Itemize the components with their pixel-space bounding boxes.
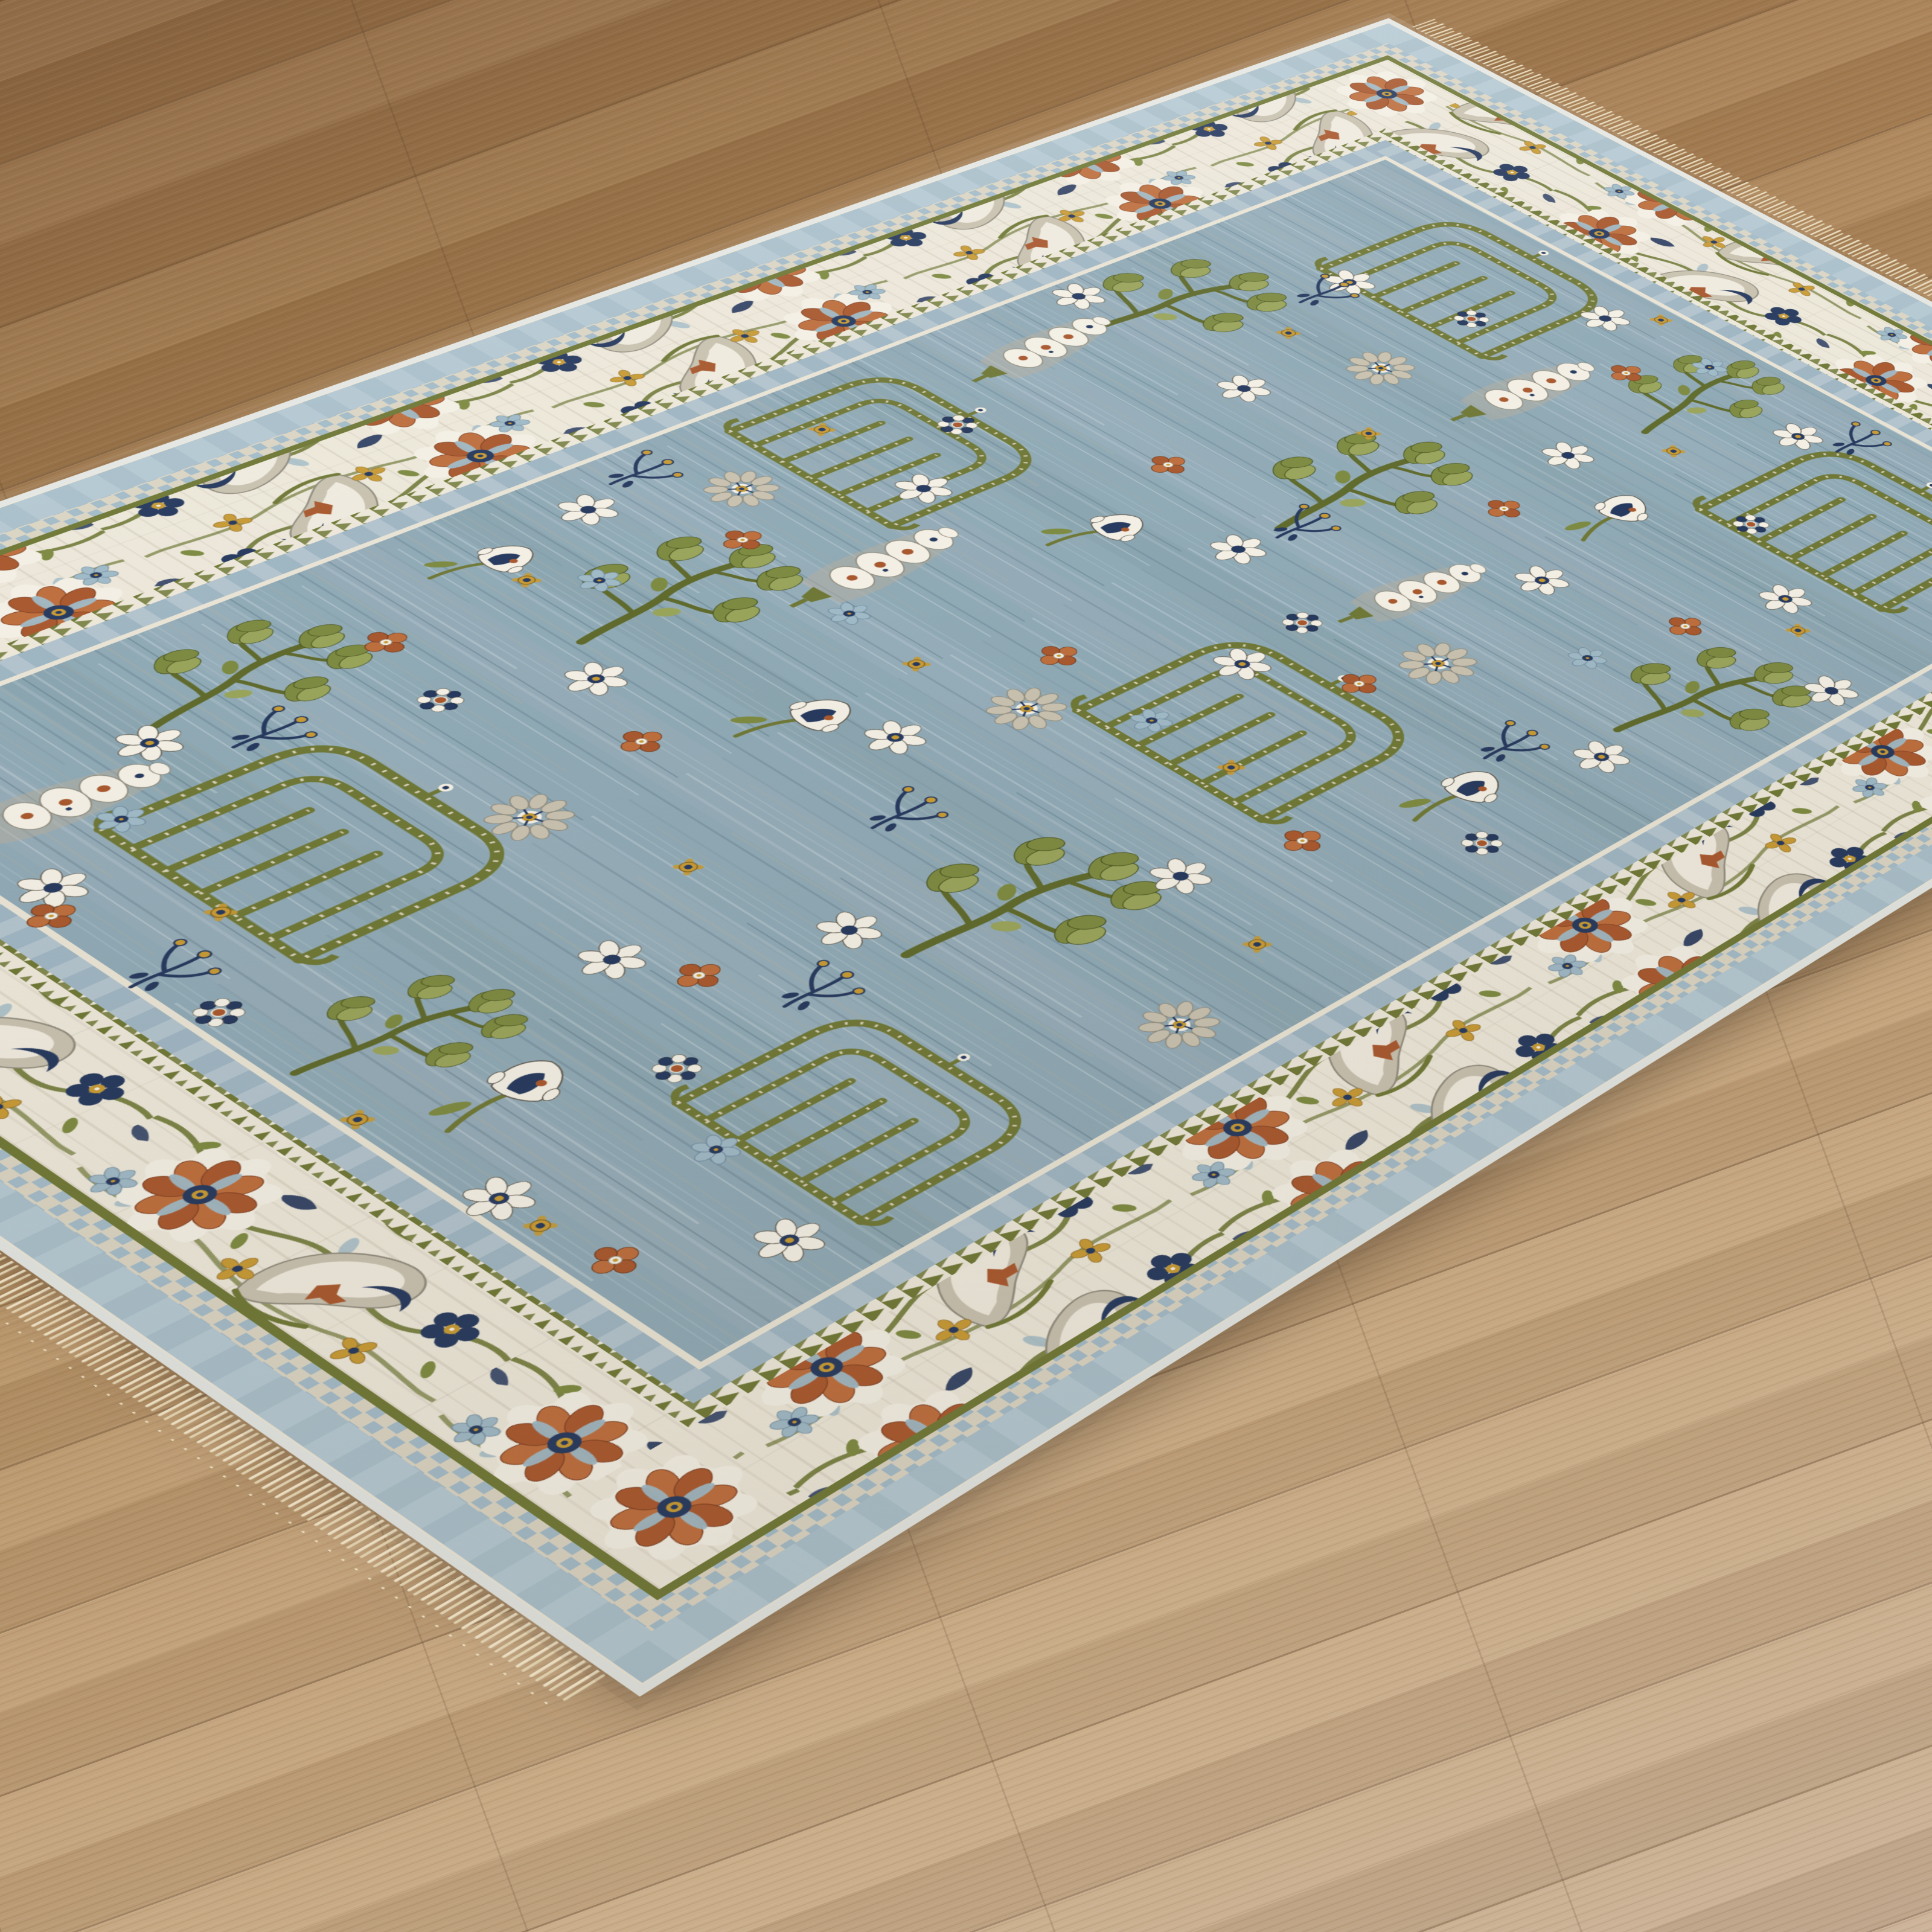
scene [0,0,1932,1932]
